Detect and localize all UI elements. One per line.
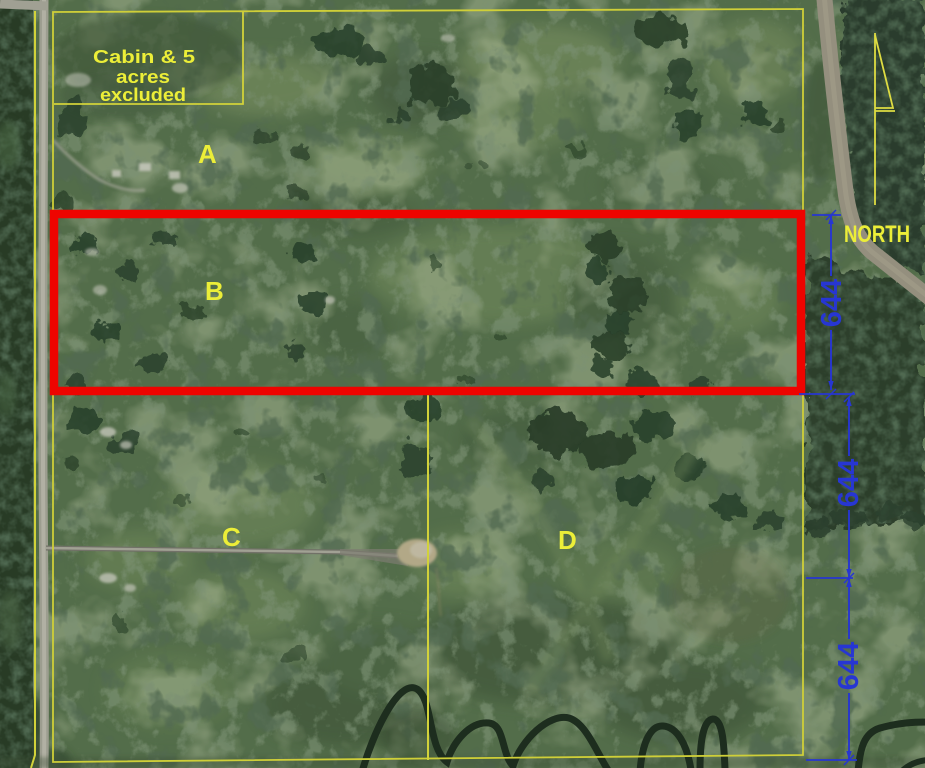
svg-text:C: C bbox=[222, 522, 241, 552]
svg-text:644: 644 bbox=[816, 279, 848, 327]
svg-text:B: B bbox=[205, 276, 224, 306]
svg-text:excluded: excluded bbox=[100, 84, 186, 105]
svg-text:644: 644 bbox=[833, 459, 865, 507]
svg-text:A: A bbox=[198, 139, 217, 169]
svg-text:NORTH: NORTH bbox=[844, 221, 910, 248]
svg-text:644: 644 bbox=[833, 642, 865, 690]
svg-text:Cabin & 5: Cabin & 5 bbox=[93, 46, 195, 67]
svg-text:D: D bbox=[558, 525, 577, 555]
